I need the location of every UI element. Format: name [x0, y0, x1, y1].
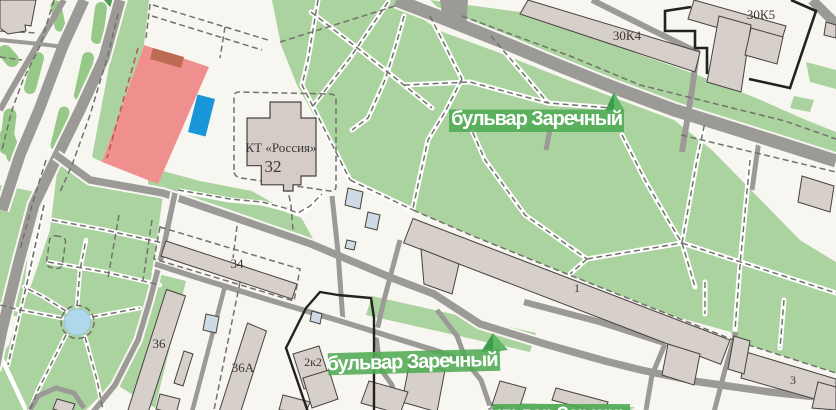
svg-text:1: 1 [574, 281, 580, 295]
svg-text:30К4: 30К4 [613, 28, 642, 43]
svg-text:КТ «Россия»: КТ «Россия» [245, 140, 316, 155]
svg-text:2к2: 2к2 [304, 355, 322, 369]
svg-text:30К5: 30К5 [747, 7, 775, 22]
svg-text:36: 36 [153, 336, 167, 351]
svg-text:36А: 36А [232, 360, 255, 375]
svg-text:3: 3 [790, 373, 796, 387]
svg-text:бульвар Заречный: бульвар Заречный [451, 108, 622, 130]
svg-text:бульвар Заречный: бульвар Заречный [480, 404, 645, 410]
svg-text:бульвар Заречный: бульвар Заречный [326, 349, 497, 375]
svg-text:32: 32 [265, 157, 282, 176]
svg-text:34: 34 [231, 256, 245, 271]
